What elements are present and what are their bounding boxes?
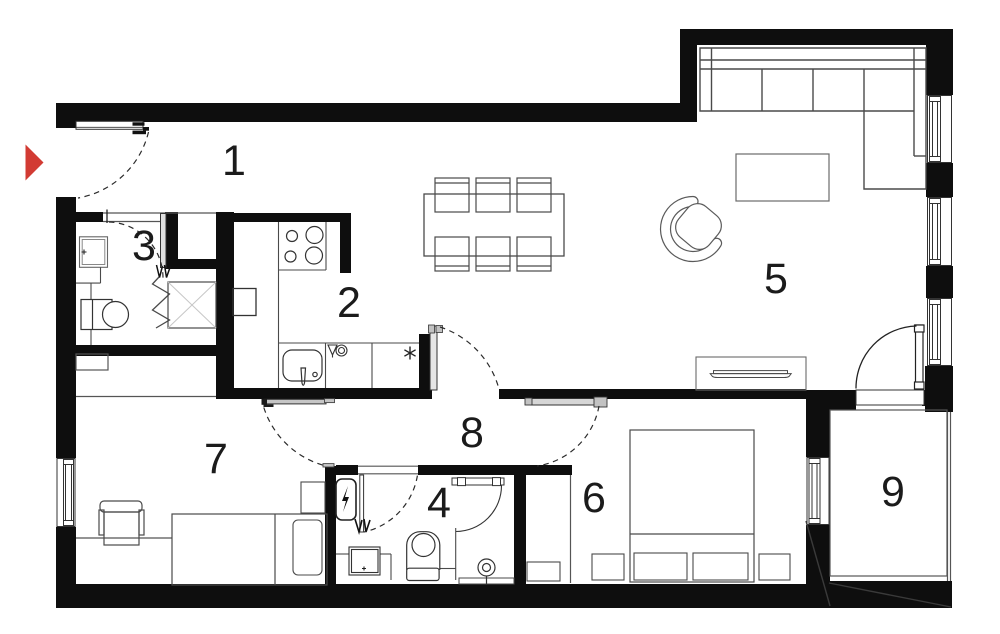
svg-text:4: 4 [427,479,451,527]
svg-text:1: 1 [222,137,246,185]
svg-text:8: 8 [460,409,484,457]
svg-text:5: 5 [764,255,788,303]
svg-text:7: 7 [204,435,228,483]
svg-text:3: 3 [132,222,156,270]
svg-text:2: 2 [337,279,361,327]
svg-text:9: 9 [881,468,905,516]
svg-text:6: 6 [582,474,606,522]
